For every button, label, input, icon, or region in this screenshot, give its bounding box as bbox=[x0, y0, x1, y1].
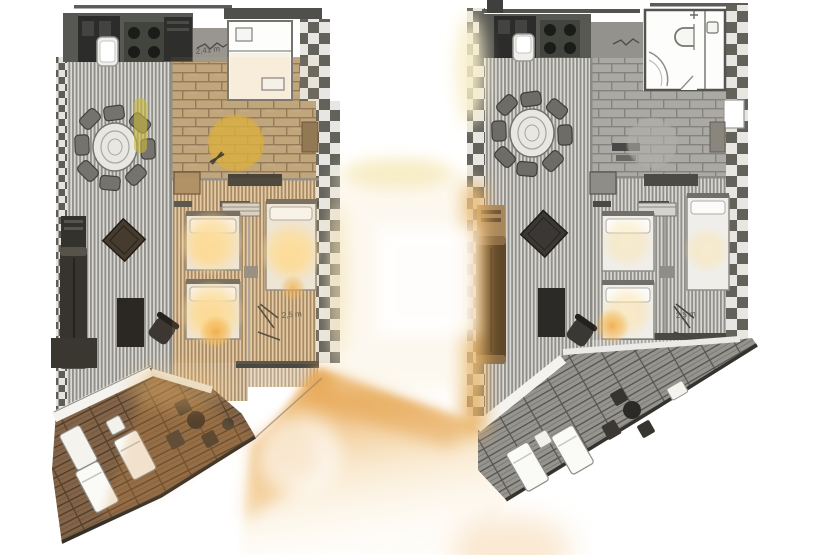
svg-text:2,5 m: 2,5 m bbox=[675, 309, 696, 320]
